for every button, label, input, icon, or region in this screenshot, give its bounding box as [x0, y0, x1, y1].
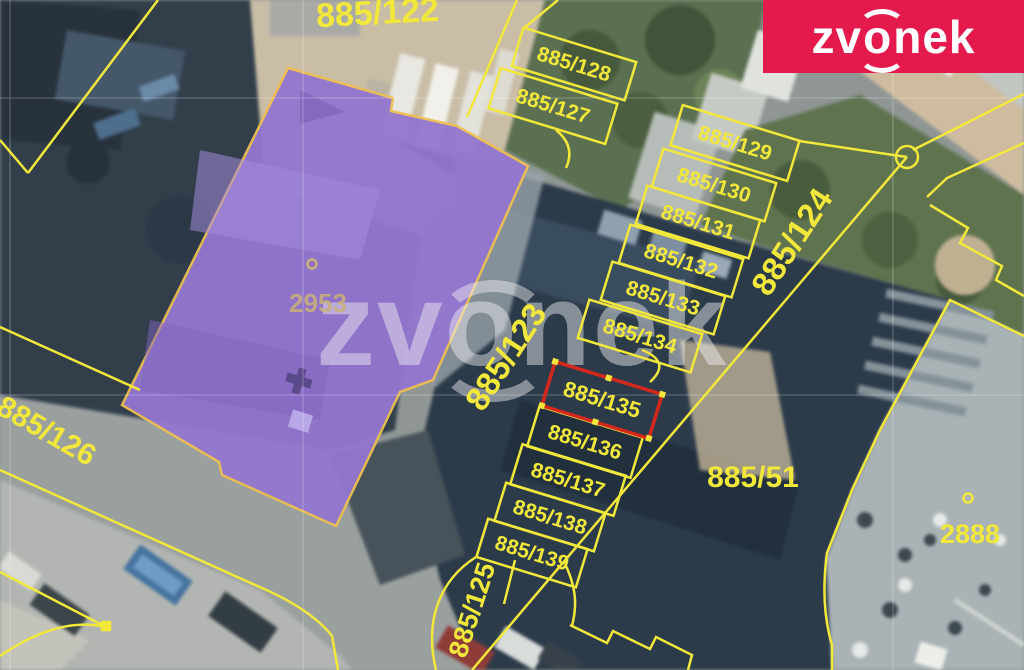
parcel-label-885-129: 885/129	[695, 121, 774, 165]
boundary-east-descender	[824, 430, 880, 670]
logo[interactable]: zvonek	[763, 0, 1024, 73]
parcel-label-885-122: 885/122	[315, 0, 440, 35]
logo-sound-arc-bottom-icon	[858, 37, 906, 73]
boundary-driveway	[0, 572, 106, 656]
parcel-label-885-127: 885/127	[513, 84, 592, 128]
parcel-label-885-137: 885/137	[528, 458, 607, 502]
boundary-134-hook	[642, 350, 659, 382]
building-point-marker-2953	[308, 260, 317, 269]
boundary-left-mid	[0, 327, 140, 390]
map-viewport[interactable]: zvonek	[0, 0, 1024, 670]
parcel-label-885-139: 885/139	[492, 531, 571, 575]
parcel-label-885-130: 885/130	[674, 163, 753, 207]
parcel-label-885-124: 885/124	[744, 181, 840, 302]
boundary-bottom-steps	[570, 625, 692, 670]
parcel-label-885-128: 885/128	[534, 42, 614, 86]
boundary-top-left	[0, 0, 158, 173]
boundary-endpoint-dot	[102, 622, 110, 630]
parcel-label-885-123: 885/123	[458, 297, 554, 417]
logo-o: o	[863, 10, 892, 64]
boundary-north-road	[799, 94, 1024, 296]
parcel-point-marker-2888	[964, 494, 973, 503]
logo-text-pre: zv	[812, 10, 863, 64]
boundary-127-tail	[556, 130, 569, 168]
cadastral-overlay: 885/122 885/128 885/127 885/129 885/130 …	[0, 0, 1024, 670]
building-label-2953: 2953	[289, 288, 347, 318]
parcel-label-885-126: 885/126	[0, 390, 101, 473]
parcel-label-885-138: 885/138	[510, 495, 590, 539]
parcel-label-2888: 2888	[940, 519, 1000, 549]
boundary-east-peak	[880, 300, 1024, 430]
parcel-label-885-51: 885/51	[707, 461, 799, 494]
boundary-street	[0, 470, 338, 670]
